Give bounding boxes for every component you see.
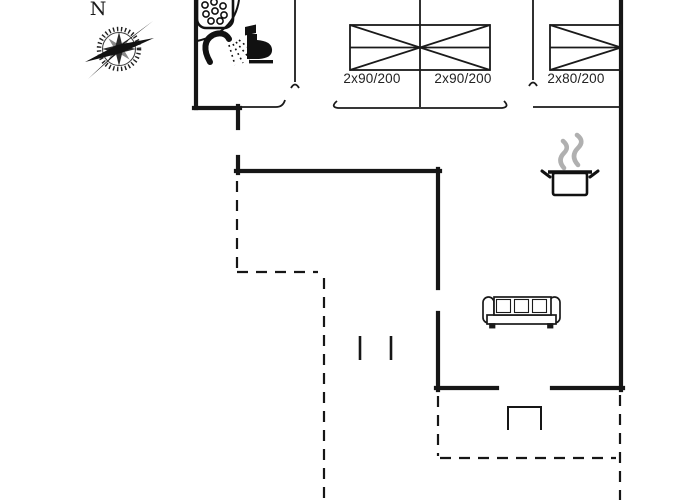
sofa-icon — [483, 297, 560, 328]
partitions — [240, 0, 621, 108]
bed-size-label-1: 2x90/200 — [327, 71, 417, 86]
single-wide-bed-icon — [550, 25, 621, 70]
steam-icon — [561, 135, 582, 168]
bed-size-label-2: 2x90/200 — [418, 71, 508, 86]
north-label: N — [86, 0, 110, 20]
entrance-step-icon — [508, 407, 541, 430]
bed-size-label-3: 2x80/200 — [531, 71, 621, 86]
terrace-dashed-lines — [237, 181, 620, 500]
terrace-marker-lines — [360, 336, 391, 360]
toilet-icon — [245, 25, 273, 64]
compass-rose-icon — [85, 21, 154, 79]
floor-plan: N 2x90/200 2x90/200 2x80/200 — [0, 0, 700, 500]
cooking-pot-icon — [542, 171, 598, 195]
